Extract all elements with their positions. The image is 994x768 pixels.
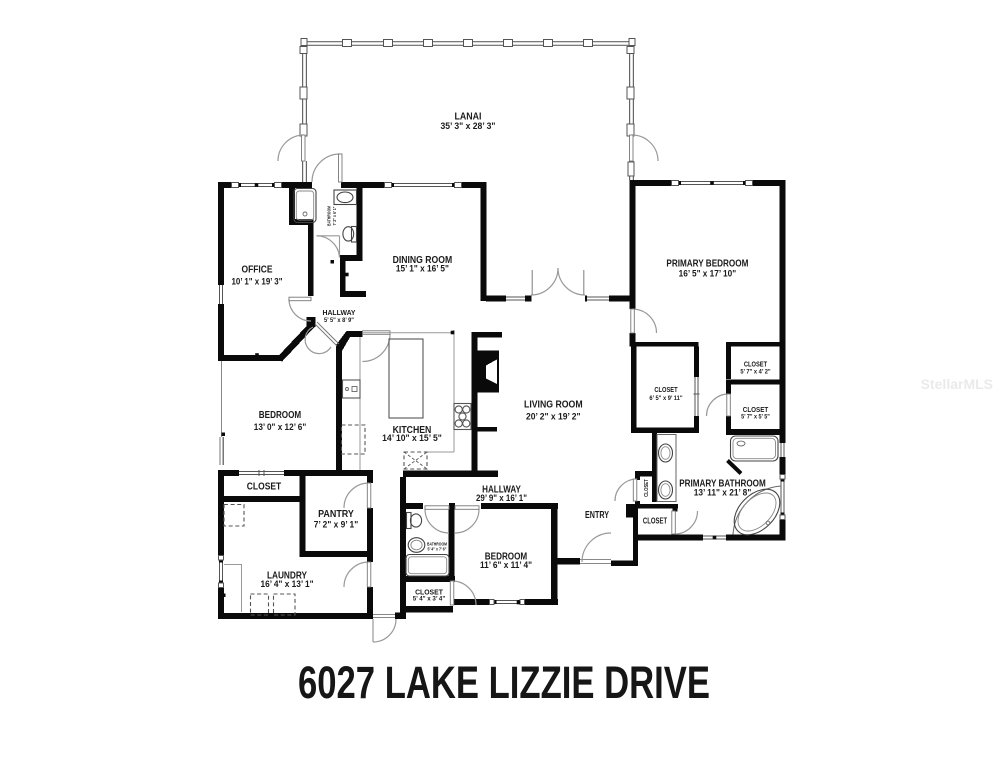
svg-text:35’ 3" x 28’ 3": 35’ 3" x 28’ 3": [441, 121, 496, 132]
svg-text:13’ 0" x 12’ 6": 13’ 0" x 12’ 6": [254, 422, 307, 433]
svg-text:6027 LAKE LIZZIE DRIVE: 6027 LAKE LIZZIE DRIVE: [298, 657, 710, 708]
svg-text:16’ 4" x 13’ 1": 16’ 4" x 13’ 1": [261, 579, 314, 590]
svg-text:13’ 11" x 21’ 8": 13’ 11" x 21’ 8": [694, 488, 752, 499]
svg-text:5’ 7" x 4’ 2": 5’ 7" x 4’ 2": [740, 369, 770, 376]
svg-text:14’ 10" x 15’ 5": 14’ 10" x 15’ 5": [382, 433, 442, 444]
svg-text:BEDROOM: BEDROOM: [259, 410, 301, 421]
svg-text:11’ 6" x 11’ 4": 11’ 6" x 11’ 4": [480, 560, 532, 571]
svg-text:OFFICE: OFFICE: [242, 265, 273, 276]
svg-text:CLOSET: CLOSET: [247, 482, 281, 493]
svg-text:6’ 5" x 9’ 11": 6’ 5" x 9’ 11": [649, 395, 682, 402]
svg-text:5’ 4" x 7’ 6": 5’ 4" x 7’ 6": [428, 547, 447, 552]
svg-text:29’ 9" x 16’ 1": 29’ 9" x 16’ 1": [476, 493, 527, 504]
svg-text:20’ 2" x 19’ 2": 20’ 2" x 19’ 2": [526, 412, 581, 423]
svg-text:5’ 5" x 8’ 9": 5’ 5" x 8’ 9": [324, 317, 354, 324]
svg-text:16’ 5" x 17’ 10": 16’ 5" x 17’ 10": [679, 269, 737, 280]
svg-text:10’ 1" x 19’ 3": 10’ 1" x 19’ 3": [232, 277, 283, 288]
svg-text:CLOSET: CLOSET: [744, 360, 768, 369]
svg-text:CLOSET: CLOSET: [643, 517, 667, 526]
svg-text:5’ 7" x 5’ 5": 5’ 7" x 5’ 5": [741, 414, 770, 421]
svg-text:15’ 1" x 16’ 5": 15’ 1" x 16’ 5": [396, 264, 449, 275]
svg-text:5’ 4" x 3’ 4": 5’ 4" x 3’ 4": [413, 596, 446, 603]
svg-text:CLOSET: CLOSET: [644, 479, 650, 497]
svg-text:CLOSET: CLOSET: [654, 385, 678, 394]
svg-text:7’ 2" x 6’ 1": 7’ 2" x 6’ 1": [332, 206, 337, 225]
svg-text:7’ 2" x 9’ 1": 7’ 2" x 9’ 1": [314, 520, 358, 531]
svg-text:HALLWAY: HALLWAY: [323, 308, 356, 317]
svg-text:LIVING ROOM: LIVING ROOM: [524, 400, 583, 411]
svg-text:ENTRY: ENTRY: [585, 510, 609, 521]
svg-text:StellarMLS: StellarMLS: [921, 376, 993, 392]
svg-text:PANTRY: PANTRY: [318, 509, 354, 520]
